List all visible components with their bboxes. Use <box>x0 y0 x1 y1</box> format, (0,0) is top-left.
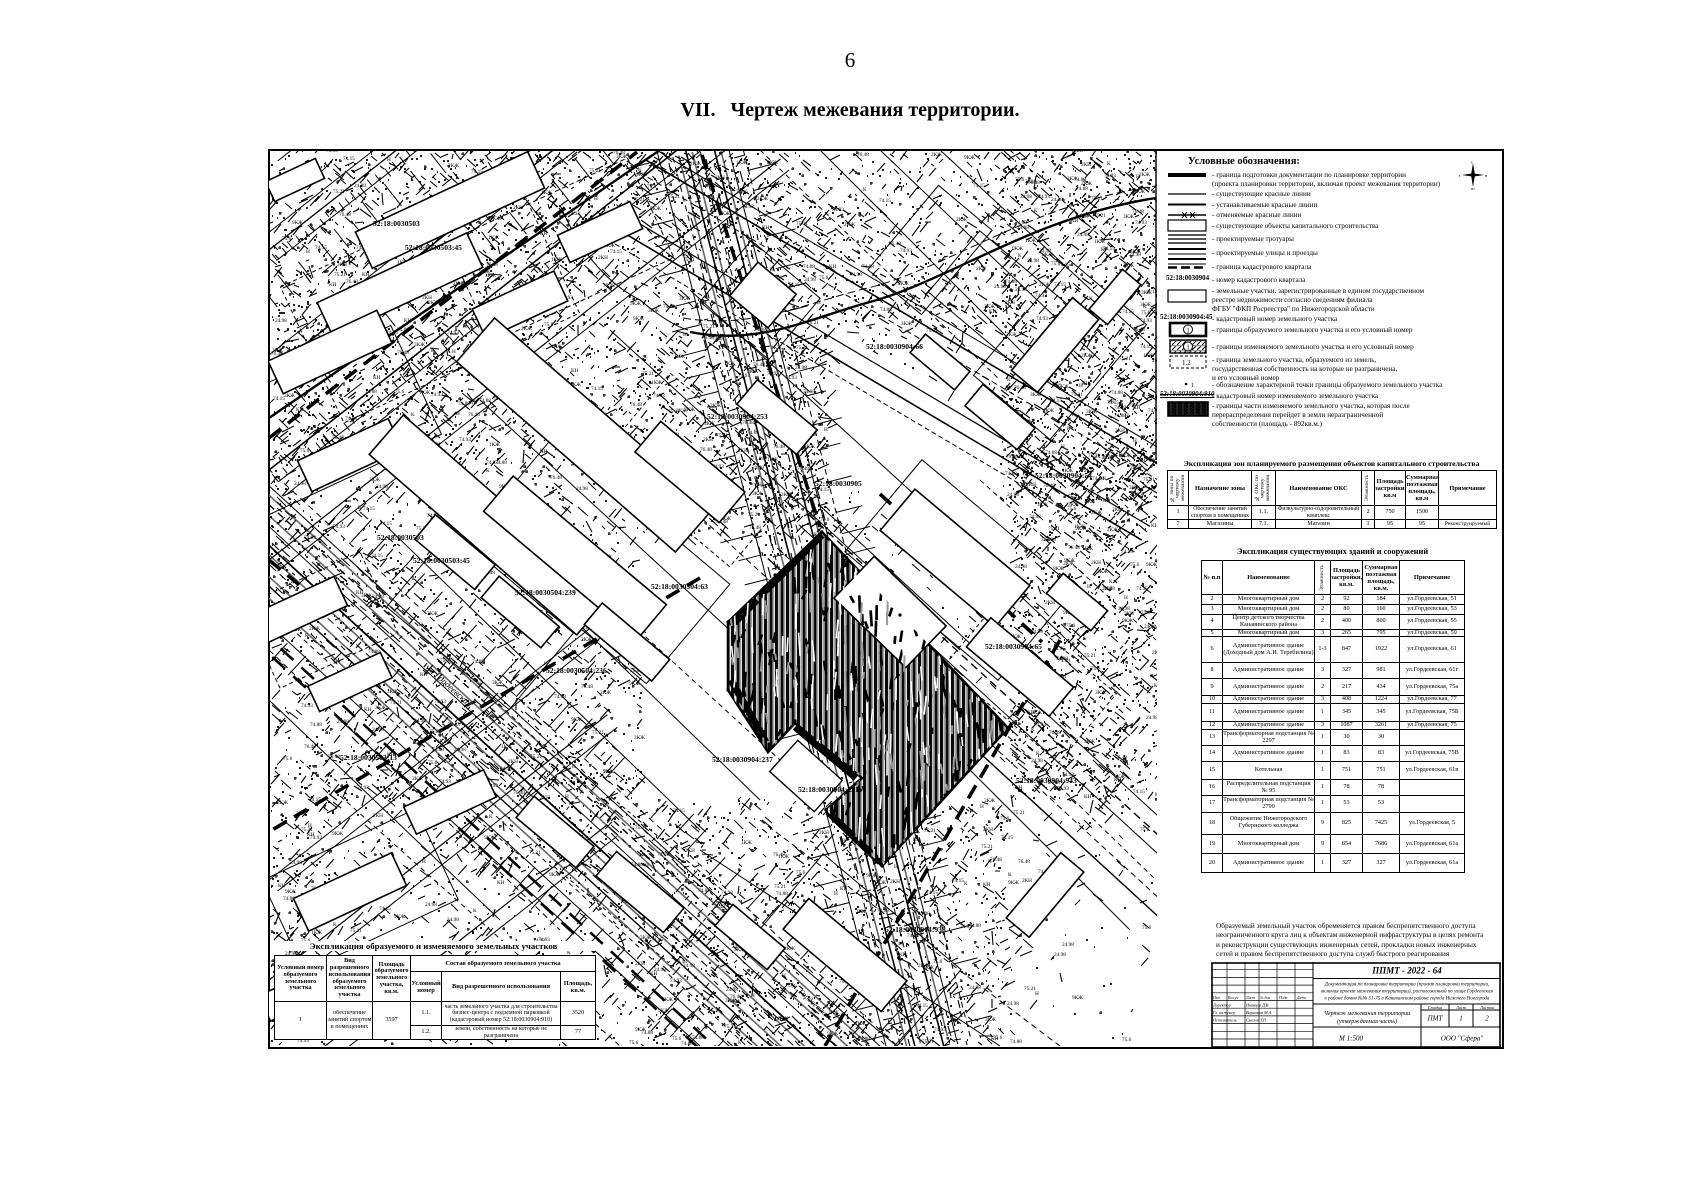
svg-text:с: с <box>1471 160 1473 165</box>
svg-text:9КЖ: 9КЖ <box>1012 246 1023 252</box>
svg-text:3КЖ: 3КЖ <box>284 393 295 399</box>
svg-text:2КЖ: 2КЖ <box>918 963 929 969</box>
svg-text:74.93: 74.93 <box>785 375 797 381</box>
svg-text:3КЖ: 3КЖ <box>1037 502 1048 508</box>
svg-text:74.88: 74.88 <box>1045 450 1057 456</box>
svg-text:2КН: 2КН <box>1124 611 1134 617</box>
svg-text:74.93: 74.93 <box>326 150 338 154</box>
svg-text:52:18:0030504:63: 52:18:0030504:63 <box>651 582 708 591</box>
svg-text:ППМТ - 2022 - 64: ППМТ - 2022 - 64 <box>1371 966 1442 976</box>
svg-text:2КН: 2КН <box>1022 878 1032 884</box>
svg-text:1КЖ: 1КЖ <box>674 354 685 360</box>
svg-text:74.88: 74.88 <box>776 891 788 897</box>
svg-text:К: К <box>1067 426 1071 432</box>
svg-text:КН: КН <box>1103 498 1111 504</box>
svg-text:2КЖ: 2КЖ <box>1139 172 1150 178</box>
svg-text:9КЖ: 9КЖ <box>571 717 582 723</box>
svg-text:74.15: 74.15 <box>379 906 391 912</box>
svg-text:2КН: 2КН <box>1085 499 1095 505</box>
svg-text:76.48: 76.48 <box>1014 385 1026 391</box>
svg-text:52:18:0030504:239: 52:18:0030504:239 <box>515 588 576 597</box>
svg-text:1КЖ: 1КЖ <box>651 380 662 386</box>
svg-text:2КЖ: 2КЖ <box>931 152 942 158</box>
svg-text:1КЖ: 1КЖ <box>767 457 778 463</box>
svg-text:2КЖ: 2КЖ <box>581 637 592 643</box>
svg-text:52:18:0030904:237: 52:18:0030904:237 <box>712 755 773 764</box>
svg-text:75.21: 75.21 <box>1088 453 1100 459</box>
svg-text:1КЖ: 1КЖ <box>311 930 322 936</box>
svg-text:2КЖ: 2КЖ <box>676 408 687 414</box>
svg-text:74.93: 74.93 <box>721 890 733 896</box>
svg-text:74.93: 74.93 <box>934 1027 946 1033</box>
svg-text:Н: Н <box>1035 991 1039 997</box>
svg-text:75.21: 75.21 <box>633 197 645 203</box>
svg-text:К: К <box>1036 751 1040 757</box>
svg-text:КН: КН <box>1027 710 1035 716</box>
svg-text:ул. Гордеевская: ул. Гордеевская <box>788 979 834 1022</box>
svg-text:2КЖ: 2КЖ <box>277 800 288 806</box>
svg-text:76.48: 76.48 <box>304 744 316 750</box>
svg-text:74.93: 74.93 <box>431 392 443 398</box>
svg-text:74.15: 74.15 <box>363 506 375 512</box>
svg-text:74.15: 74.15 <box>879 198 891 204</box>
svg-text:74.15: 74.15 <box>1050 398 1062 404</box>
svg-text:з: з <box>1459 173 1461 178</box>
svg-text:2КН: 2КН <box>685 848 695 854</box>
svg-text:КН: КН <box>829 264 837 270</box>
svg-text:24.98: 24.98 <box>1062 942 1074 948</box>
svg-text:3КЖ: 3КЖ <box>1141 290 1152 296</box>
svg-text:74.15: 74.15 <box>1136 586 1148 592</box>
svg-text:3КЖ: 3КЖ <box>1030 392 1041 398</box>
svg-text:74.88: 74.88 <box>803 389 815 395</box>
svg-text:К: К <box>1107 161 1111 167</box>
svg-text:74.93: 74.93 <box>1029 514 1041 520</box>
svg-text:2КЖ: 2КЖ <box>1091 510 1102 516</box>
svg-text:2КЖ: 2КЖ <box>898 281 909 287</box>
svg-text:К: К <box>964 881 968 887</box>
svg-text:24.98: 24.98 <box>1129 252 1141 258</box>
svg-text:52:18:0030904:943: 52:18:0030904:943 <box>1016 776 1077 785</box>
svg-text:Н: Н <box>824 427 828 433</box>
svg-text:75.21: 75.21 <box>1048 526 1060 532</box>
svg-text:ПМТ: ПМТ <box>1427 1015 1444 1023</box>
svg-text:75.6: 75.6 <box>796 870 806 876</box>
svg-text:2КЖ: 2КЖ <box>309 626 320 632</box>
svg-text:Лист: Лист <box>1455 1005 1466 1010</box>
svg-text:3КЖ: 3КЖ <box>1095 690 1106 696</box>
svg-text:52:18:0030905: 52:18:0030905 <box>815 479 862 488</box>
svg-text:75.21: 75.21 <box>1119 356 1131 362</box>
svg-text:75.6: 75.6 <box>629 1040 639 1046</box>
svg-text:74.93: 74.93 <box>333 524 345 530</box>
svg-text:24.98: 24.98 <box>354 183 366 189</box>
svg-text:КН: КН <box>1015 785 1023 791</box>
svg-text:24.98: 24.98 <box>576 486 588 492</box>
svg-text:76.48: 76.48 <box>1070 496 1082 502</box>
svg-text:24.98: 24.98 <box>804 277 816 283</box>
svg-text:74.93: 74.93 <box>653 393 665 399</box>
svg-text:74.88: 74.88 <box>1058 658 1070 664</box>
svg-text:76.48: 76.48 <box>1068 545 1080 551</box>
svg-text:К: К <box>1101 247 1105 253</box>
svg-text:74.93: 74.93 <box>1038 194 1050 200</box>
svg-text:74.15: 74.15 <box>651 937 663 943</box>
svg-text:74.93: 74.93 <box>447 330 459 336</box>
svg-text:9КЖ: 9КЖ <box>1058 384 1069 390</box>
svg-text:3КЖ: 3КЖ <box>427 611 438 617</box>
svg-text:К: К <box>486 468 490 474</box>
svg-text:3КЖ: 3КЖ <box>414 342 425 348</box>
svg-text:75.6: 75.6 <box>1122 1037 1132 1043</box>
svg-text:74.88: 74.88 <box>1114 405 1126 411</box>
svg-text:24.98: 24.98 <box>1054 952 1066 958</box>
svg-text:2КН: 2КН <box>1102 586 1112 592</box>
svg-text:3КЖ: 3КЖ <box>296 811 307 817</box>
svg-text:3КЖ: 3КЖ <box>901 321 912 327</box>
svg-text:75.6: 75.6 <box>1141 610 1151 616</box>
svg-text:75.6: 75.6 <box>993 1035 1003 1041</box>
svg-text:3КЖ: 3КЖ <box>679 296 690 302</box>
svg-text:ю: ю <box>1471 186 1475 190</box>
svg-text:24.98: 24.98 <box>969 985 981 991</box>
svg-text:1КЖ: 1КЖ <box>1120 453 1131 459</box>
svg-text:24.98: 24.98 <box>425 902 437 908</box>
svg-text:74.15: 74.15 <box>380 521 392 527</box>
svg-text:74.15: 74.15 <box>1054 282 1066 288</box>
svg-text:9КЖ: 9КЖ <box>394 914 405 920</box>
svg-text:Директор: Директор <box>1212 1003 1231 1008</box>
svg-text:в: в <box>1485 173 1487 178</box>
svg-text:КН: КН <box>404 318 412 324</box>
svg-text:75.6: 75.6 <box>1091 666 1101 672</box>
svg-text:74.93: 74.93 <box>1135 220 1147 226</box>
svg-text:75.21: 75.21 <box>981 844 993 850</box>
svg-text:24.98: 24.98 <box>447 917 459 923</box>
svg-text:24.98: 24.98 <box>1051 197 1063 203</box>
svg-text:Н: Н <box>572 764 576 770</box>
svg-text:74.88: 74.88 <box>969 923 981 929</box>
svg-text:2КН: 2КН <box>1045 600 1055 606</box>
svg-text:2КЖ: 2КЖ <box>448 163 459 169</box>
svg-text:КН: КН <box>296 407 304 413</box>
svg-text:74.15: 74.15 <box>309 797 321 803</box>
svg-text:Н: Н <box>594 196 598 202</box>
svg-text:9КЖ: 9КЖ <box>1008 880 1019 886</box>
svg-text:3КЖ: 3КЖ <box>710 403 721 409</box>
svg-text:(утверждаемая часть): (утверждаемая часть) <box>1337 1018 1397 1025</box>
svg-text:76.48: 76.48 <box>581 684 593 690</box>
svg-text:в районе домов №№ 51-75 в Кана: в районе домов №№ 51-75 в Канавинском ра… <box>1325 996 1490 1002</box>
svg-text:9КЖ: 9КЖ <box>658 1008 669 1014</box>
svg-text:Н: Н <box>980 804 984 810</box>
svg-text:74.88: 74.88 <box>495 460 507 466</box>
svg-text:75.6: 75.6 <box>1142 925 1152 931</box>
svg-text:74.15: 74.15 <box>926 890 938 896</box>
svg-text:2КЖ: 2КЖ <box>1107 527 1118 533</box>
svg-text:2КЖ: 2КЖ <box>1152 650 1157 656</box>
svg-text:75.21: 75.21 <box>1109 450 1121 456</box>
svg-text:9КЖ: 9КЖ <box>1064 558 1075 564</box>
svg-text:76.48: 76.48 <box>1132 209 1144 215</box>
svg-text:3КЖ: 3КЖ <box>804 444 815 450</box>
svg-text:74.88: 74.88 <box>1010 1039 1022 1045</box>
svg-text:2КН: 2КН <box>1025 179 1035 185</box>
svg-text:КН: КН <box>364 707 372 713</box>
svg-text:К: К <box>863 187 867 193</box>
svg-text:Смелов Т.П: Смелов Т.П <box>1246 1018 1267 1023</box>
svg-text:75.21: 75.21 <box>1084 653 1096 659</box>
svg-text:9КЖ: 9КЖ <box>484 835 495 841</box>
svg-text:52:18:0030503: 52:18:0030503 <box>377 533 424 542</box>
svg-text:75.21: 75.21 <box>922 1039 934 1045</box>
svg-text:74.15: 74.15 <box>343 156 355 162</box>
svg-text:Н: Н <box>1087 584 1091 590</box>
svg-text:74.93: 74.93 <box>900 248 912 254</box>
svg-text:24.98: 24.98 <box>1015 287 1027 293</box>
svg-text:75.6: 75.6 <box>819 275 829 281</box>
svg-text:75.6: 75.6 <box>1066 623 1076 629</box>
svg-text:75.6: 75.6 <box>933 959 943 965</box>
svg-text:24.98: 24.98 <box>376 484 388 490</box>
svg-text:76.48: 76.48 <box>749 525 761 531</box>
svg-text:76.48: 76.48 <box>513 790 525 796</box>
svg-text:9КЖ: 9КЖ <box>292 220 303 226</box>
svg-text:74.88: 74.88 <box>472 659 484 665</box>
svg-text:1КЖ: 1КЖ <box>724 361 735 367</box>
svg-text:76.48: 76.48 <box>891 941 903 947</box>
svg-text:76.48: 76.48 <box>773 852 785 858</box>
svg-text:КН: КН <box>762 225 770 231</box>
svg-text:74.88: 74.88 <box>880 307 892 313</box>
svg-text:9КЖ: 9КЖ <box>332 831 343 837</box>
svg-text:24.98: 24.98 <box>1015 564 1027 570</box>
svg-text:24.98: 24.98 <box>795 365 807 371</box>
svg-text:74.93: 74.93 <box>1104 173 1116 179</box>
svg-text:76.48: 76.48 <box>700 447 712 453</box>
svg-text:74.15: 74.15 <box>706 183 718 189</box>
svg-text:1КЖ: 1КЖ <box>1143 353 1154 359</box>
svg-text:Н: Н <box>751 993 755 999</box>
svg-text:9КЖ: 9КЖ <box>1122 618 1133 624</box>
svg-text:КН: КН <box>571 368 579 374</box>
svg-text:76.48: 76.48 <box>1018 859 1030 865</box>
svg-text:2КЖ: 2КЖ <box>521 326 532 332</box>
svg-text:К: К <box>402 676 406 682</box>
svg-text:3КЖ: 3КЖ <box>1084 739 1095 745</box>
svg-text:2КН: 2КН <box>373 813 383 819</box>
svg-text:74.15: 74.15 <box>1140 344 1152 350</box>
svg-text:3КЖ: 3КЖ <box>616 154 627 160</box>
svg-text:1КЖ: 1КЖ <box>1094 239 1105 245</box>
svg-text:КН: КН <box>307 832 315 838</box>
svg-text:75.6: 75.6 <box>1067 506 1077 512</box>
svg-text:74.15: 74.15 <box>1133 789 1145 795</box>
svg-text:74.88: 74.88 <box>310 722 322 728</box>
svg-text:74.88: 74.88 <box>397 327 409 333</box>
svg-text:К: К <box>1031 727 1035 733</box>
svg-text:К: К <box>1008 872 1012 878</box>
svg-text:1КЖ: 1КЖ <box>1134 189 1145 195</box>
svg-text:75.21: 75.21 <box>1094 213 1106 219</box>
svg-text:24.98: 24.98 <box>1077 232 1089 238</box>
svg-text:ООО "Сфера": ООО "Сфера" <box>1441 1035 1484 1043</box>
svg-text:1.2: 1.2 <box>1182 359 1191 367</box>
svg-text:К: К <box>333 922 337 928</box>
svg-text:76.48: 76.48 <box>857 152 869 158</box>
svg-text:75.21: 75.21 <box>748 512 760 518</box>
svg-text:К: К <box>539 268 543 274</box>
svg-text:Дата: Дата <box>1296 996 1306 1000</box>
svg-text:75.6: 75.6 <box>428 760 438 766</box>
svg-text:2КЖ: 2КЖ <box>600 690 611 696</box>
svg-text:74.15: 74.15 <box>371 553 383 559</box>
svg-text:24.98: 24.98 <box>752 465 764 471</box>
svg-text:75.21: 75.21 <box>592 730 604 736</box>
svg-text:74.88: 74.88 <box>877 908 889 914</box>
svg-text:74.93: 74.93 <box>1034 722 1046 728</box>
svg-text:75.6: 75.6 <box>282 236 292 242</box>
svg-text:Н: Н <box>387 157 391 163</box>
svg-text:9КЖ: 9КЖ <box>629 681 640 687</box>
svg-text:Н: Н <box>1133 438 1137 444</box>
svg-text:Н: Н <box>775 338 779 344</box>
svg-text:2КН: 2КН <box>890 879 900 885</box>
svg-text:74.88: 74.88 <box>858 1036 870 1042</box>
svg-text:75.6: 75.6 <box>1141 310 1151 316</box>
svg-text:2КН: 2КН <box>337 262 347 268</box>
svg-text:2КЖ: 2КЖ <box>844 222 855 228</box>
svg-text:Н: Н <box>1124 595 1128 601</box>
svg-text:24.98: 24.98 <box>1146 715 1157 721</box>
svg-text:9КЖ: 9КЖ <box>285 889 296 895</box>
svg-text:Изм: Изм <box>1212 996 1220 1000</box>
svg-text:75.21: 75.21 <box>683 257 695 263</box>
svg-text:включая проект межевания терри: включая проект межевания территории), ра… <box>1321 989 1493 995</box>
svg-text:К: К <box>1007 377 1011 383</box>
svg-text:52:18:0030503:45: 52:18:0030503:45 <box>405 243 462 252</box>
svg-text:75.6: 75.6 <box>300 448 310 454</box>
svg-text:75.21: 75.21 <box>529 850 541 856</box>
svg-text:Н: Н <box>306 249 310 255</box>
svg-text:24.98: 24.98 <box>754 327 766 333</box>
svg-text:74.15: 74.15 <box>315 245 327 251</box>
svg-text:К: К <box>473 908 477 914</box>
svg-text:9КЖ: 9КЖ <box>747 369 758 375</box>
svg-text:9КЖ: 9КЖ <box>549 872 560 878</box>
svg-text:75.21: 75.21 <box>724 1024 736 1030</box>
svg-text:2КЖ: 2КЖ <box>453 281 464 287</box>
svg-text:24.98: 24.98 <box>294 481 306 487</box>
svg-text:КН: КН <box>1154 683 1157 689</box>
svg-text:74.88: 74.88 <box>1005 471 1017 477</box>
svg-text:2КЖ: 2КЖ <box>757 196 768 202</box>
svg-text:75.6: 75.6 <box>647 184 657 190</box>
svg-text:3КЖ: 3КЖ <box>1097 569 1108 575</box>
svg-text:Кол.уч: Кол.уч <box>1227 996 1238 1000</box>
svg-text:75.6: 75.6 <box>1015 177 1025 183</box>
svg-text:КН: КН <box>1155 792 1157 798</box>
svg-text:Н: Н <box>463 324 467 330</box>
svg-text:74.88: 74.88 <box>641 1030 653 1036</box>
svg-text:2КН: 2КН <box>1112 507 1122 513</box>
svg-text:75.21: 75.21 <box>1013 810 1025 816</box>
svg-text:Н: Н <box>775 150 779 153</box>
svg-text:3КЖ: 3КЖ <box>1086 409 1097 415</box>
svg-text:75.21: 75.21 <box>334 272 346 278</box>
svg-text:74.93: 74.93 <box>439 779 451 785</box>
svg-text:9КЖ: 9КЖ <box>1149 625 1157 631</box>
svg-text:74.88: 74.88 <box>365 389 377 395</box>
svg-text:К: К <box>1034 208 1038 214</box>
svg-text:3КЖ: 3КЖ <box>1067 176 1078 182</box>
svg-text:74.93: 74.93 <box>663 304 675 310</box>
svg-text:74.93: 74.93 <box>1035 293 1047 299</box>
svg-text:74.93: 74.93 <box>1036 316 1048 322</box>
svg-text:9КЖ: 9КЖ <box>630 301 641 307</box>
svg-text:2КЖ: 2КЖ <box>369 477 380 483</box>
svg-text:52:18:0030904:231э: 52:18:0030904:231э <box>798 785 863 794</box>
svg-text:74.15: 74.15 <box>916 1003 928 1009</box>
svg-text:1КЖ: 1КЖ <box>419 390 430 396</box>
svg-text:КН: КН <box>420 672 428 678</box>
svg-text:Н: Н <box>1125 413 1129 419</box>
svg-text:1КЖ: 1КЖ <box>777 1016 788 1022</box>
svg-text:1КЖ: 1КЖ <box>551 344 562 350</box>
svg-text:2КН: 2КН <box>1081 162 1091 168</box>
svg-text:74.88: 74.88 <box>1015 220 1027 226</box>
svg-text:2КЖ: 2КЖ <box>784 946 795 952</box>
svg-text:2КН: 2КН <box>1115 428 1125 434</box>
svg-text:КН: КН <box>1114 777 1122 783</box>
svg-text:Н: Н <box>452 349 456 355</box>
svg-text:Документация по планировке тер: Документация по планировке территории (п… <box>1324 983 1489 988</box>
svg-text:К: К <box>1109 579 1113 585</box>
svg-text:1КЖ: 1КЖ <box>488 235 499 241</box>
svg-text:74.88: 74.88 <box>458 401 470 407</box>
svg-text:3КЖ: 3КЖ <box>375 705 386 711</box>
svg-text:76.48: 76.48 <box>468 412 480 418</box>
svg-text:74.15: 74.15 <box>1001 835 1013 841</box>
svg-text:КН: КН <box>680 245 688 251</box>
svg-text:74.88: 74.88 <box>479 398 491 404</box>
svg-text:76.48: 76.48 <box>1115 755 1127 761</box>
svg-text:К: К <box>1089 296 1093 302</box>
svg-text:2КЖ: 2КЖ <box>662 997 673 1003</box>
svg-text:74.15: 74.15 <box>673 808 685 814</box>
svg-text:24.98: 24.98 <box>1027 258 1039 264</box>
svg-text:1КЖ: 1КЖ <box>741 840 752 846</box>
svg-text:74.93: 74.93 <box>459 437 471 443</box>
svg-text:75.21: 75.21 <box>774 884 786 890</box>
svg-text:24.98: 24.98 <box>683 963 695 969</box>
svg-text:3КЖ: 3КЖ <box>1123 263 1134 269</box>
svg-text:№ док: № док <box>1259 996 1270 1000</box>
svg-text:76.48: 76.48 <box>630 402 642 408</box>
svg-text:1КЖ: 1КЖ <box>541 190 552 196</box>
svg-text:75.6: 75.6 <box>1140 827 1150 833</box>
svg-text:2КН: 2КН <box>1005 300 1015 306</box>
svg-text:52:18:0030904:65: 52:18:0030904:65 <box>985 642 1042 651</box>
svg-text:Н: Н <box>754 429 758 435</box>
svg-text:76.48: 76.48 <box>773 444 785 450</box>
svg-text:2КЖ: 2КЖ <box>956 217 967 223</box>
svg-text:КН: КН <box>1082 381 1090 387</box>
svg-text:24.98: 24.98 <box>918 911 930 917</box>
svg-text:К: К <box>431 348 435 354</box>
svg-text:КН: КН <box>989 309 997 315</box>
svg-text:24.98: 24.98 <box>1007 1001 1019 1007</box>
